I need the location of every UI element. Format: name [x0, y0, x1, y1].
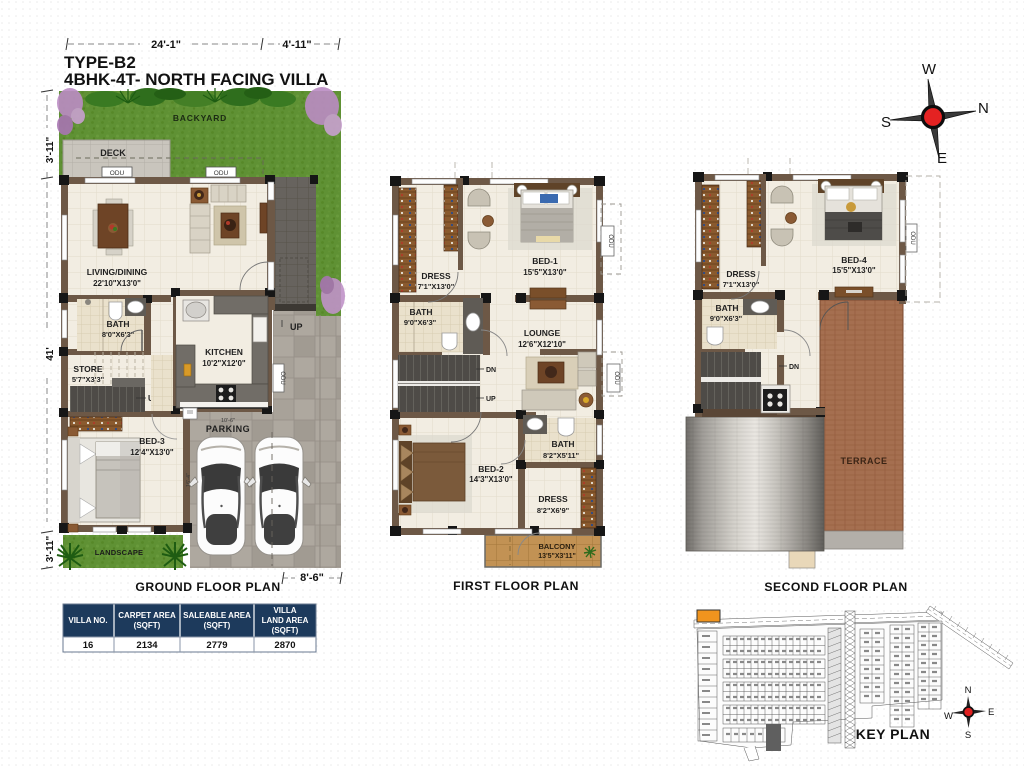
- svg-text:BATH: BATH: [410, 307, 433, 317]
- svg-text:(SQFT): (SQFT): [204, 621, 231, 630]
- svg-text:(SQFT): (SQFT): [272, 626, 299, 635]
- svg-text:DN: DN: [486, 367, 496, 374]
- svg-text:ODU: ODU: [613, 371, 619, 384]
- svg-text:DRESS: DRESS: [421, 271, 451, 281]
- svg-text:E: E: [988, 707, 994, 718]
- svg-text:24'-1": 24'-1": [151, 39, 181, 51]
- svg-text:ODU: ODU: [909, 231, 915, 244]
- svg-text:N: N: [978, 100, 989, 117]
- svg-text:SECOND FLOOR PLAN: SECOND FLOOR PLAN: [764, 580, 907, 594]
- svg-text:14'3"X13'0": 14'3"X13'0": [469, 475, 513, 484]
- svg-text:8'2"X5'11": 8'2"X5'11": [543, 451, 580, 460]
- svg-text:W: W: [944, 711, 953, 722]
- svg-text:7'1"X13'0": 7'1"X13'0": [723, 280, 760, 289]
- svg-text:ODU: ODU: [110, 170, 125, 177]
- svg-text:BED-3: BED-3: [139, 436, 165, 446]
- svg-text:ODU: ODU: [279, 371, 285, 384]
- svg-text:DRESS: DRESS: [538, 494, 568, 504]
- svg-text:CARPET AREA: CARPET AREA: [118, 611, 176, 620]
- svg-text:BACKYARD: BACKYARD: [173, 113, 227, 123]
- svg-text:LANDSCAPE: LANDSCAPE: [95, 548, 143, 557]
- svg-text:LOUNGE: LOUNGE: [524, 328, 561, 338]
- svg-text:15'5"X13'0": 15'5"X13'0": [523, 268, 567, 277]
- svg-text:BED-4: BED-4: [841, 255, 867, 265]
- svg-text:BALCONY: BALCONY: [538, 542, 575, 551]
- svg-text:KITCHEN: KITCHEN: [205, 347, 243, 357]
- svg-text:15'5"X13'0": 15'5"X13'0": [832, 266, 876, 275]
- svg-text:SALEABLE AREA: SALEABLE AREA: [183, 611, 251, 620]
- svg-text:7'1"X13'0": 7'1"X13'0": [418, 282, 455, 291]
- svg-text:BATH: BATH: [107, 319, 130, 329]
- svg-text:16: 16: [83, 640, 94, 651]
- svg-text:12'6"X12'10": 12'6"X12'10": [518, 340, 566, 349]
- svg-text:3'-11": 3'-11": [45, 535, 56, 562]
- svg-text:22'10"X13'0": 22'10"X13'0": [93, 279, 141, 288]
- svg-text:LIVING/DINING: LIVING/DINING: [87, 267, 148, 277]
- svg-text:KEY PLAN: KEY PLAN: [856, 726, 931, 742]
- svg-text:8'2"X6'9": 8'2"X6'9": [537, 506, 570, 515]
- svg-text:N: N: [965, 685, 972, 696]
- svg-text:2134: 2134: [136, 640, 158, 651]
- svg-text:DN: DN: [789, 364, 799, 371]
- svg-text:DRESS: DRESS: [726, 269, 756, 279]
- svg-text:BED-1: BED-1: [532, 256, 558, 266]
- svg-text:LAND AREA: LAND AREA: [262, 616, 309, 625]
- svg-text:UP: UP: [486, 396, 496, 403]
- svg-text:(SQFT): (SQFT): [134, 621, 161, 630]
- svg-text:4BHK-4T- NORTH FACING VILLA: 4BHK-4T- NORTH FACING VILLA: [64, 70, 328, 89]
- svg-text:BATH: BATH: [716, 303, 739, 313]
- svg-text:9'0"X6'3": 9'0"X6'3": [404, 318, 437, 327]
- svg-text:8'-6": 8'-6": [300, 572, 324, 584]
- svg-text:FIRST FLOOR PLAN: FIRST FLOOR PLAN: [453, 579, 579, 593]
- svg-text:3'-11": 3'-11": [45, 136, 56, 163]
- svg-text:12'4"X13'0": 12'4"X13'0": [130, 448, 174, 457]
- svg-text:BATH: BATH: [552, 439, 575, 449]
- svg-text:E: E: [937, 150, 947, 167]
- svg-text:UP: UP: [290, 322, 303, 332]
- svg-text:PARKING: PARKING: [206, 424, 250, 434]
- svg-text:VILLA: VILLA: [273, 606, 296, 615]
- svg-text:2779: 2779: [206, 640, 227, 651]
- svg-text:ODU: ODU: [607, 234, 613, 247]
- svg-text:41': 41': [45, 347, 56, 361]
- svg-text:BED-2: BED-2: [478, 464, 504, 474]
- svg-text:4'-11": 4'-11": [282, 39, 311, 51]
- svg-text:9'0"X6'3": 9'0"X6'3": [710, 314, 743, 323]
- svg-text:13'5"X3'11": 13'5"X3'11": [538, 553, 576, 560]
- svg-text:5'7"X3'3": 5'7"X3'3": [72, 375, 105, 384]
- svg-text:STORE: STORE: [73, 364, 102, 374]
- svg-text:2870: 2870: [274, 640, 295, 651]
- svg-text:ODU: ODU: [214, 170, 229, 177]
- svg-text:10'2"X12'0": 10'2"X12'0": [202, 359, 246, 368]
- svg-text:DECK: DECK: [100, 148, 126, 158]
- svg-text:TERRACE: TERRACE: [840, 456, 887, 466]
- svg-text:S: S: [881, 114, 891, 131]
- svg-text:S: S: [965, 730, 971, 741]
- svg-text:W: W: [922, 61, 937, 78]
- svg-text:GROUND FLOOR PLAN: GROUND FLOOR PLAN: [135, 580, 280, 594]
- svg-text:VILLA NO.: VILLA NO.: [68, 616, 107, 625]
